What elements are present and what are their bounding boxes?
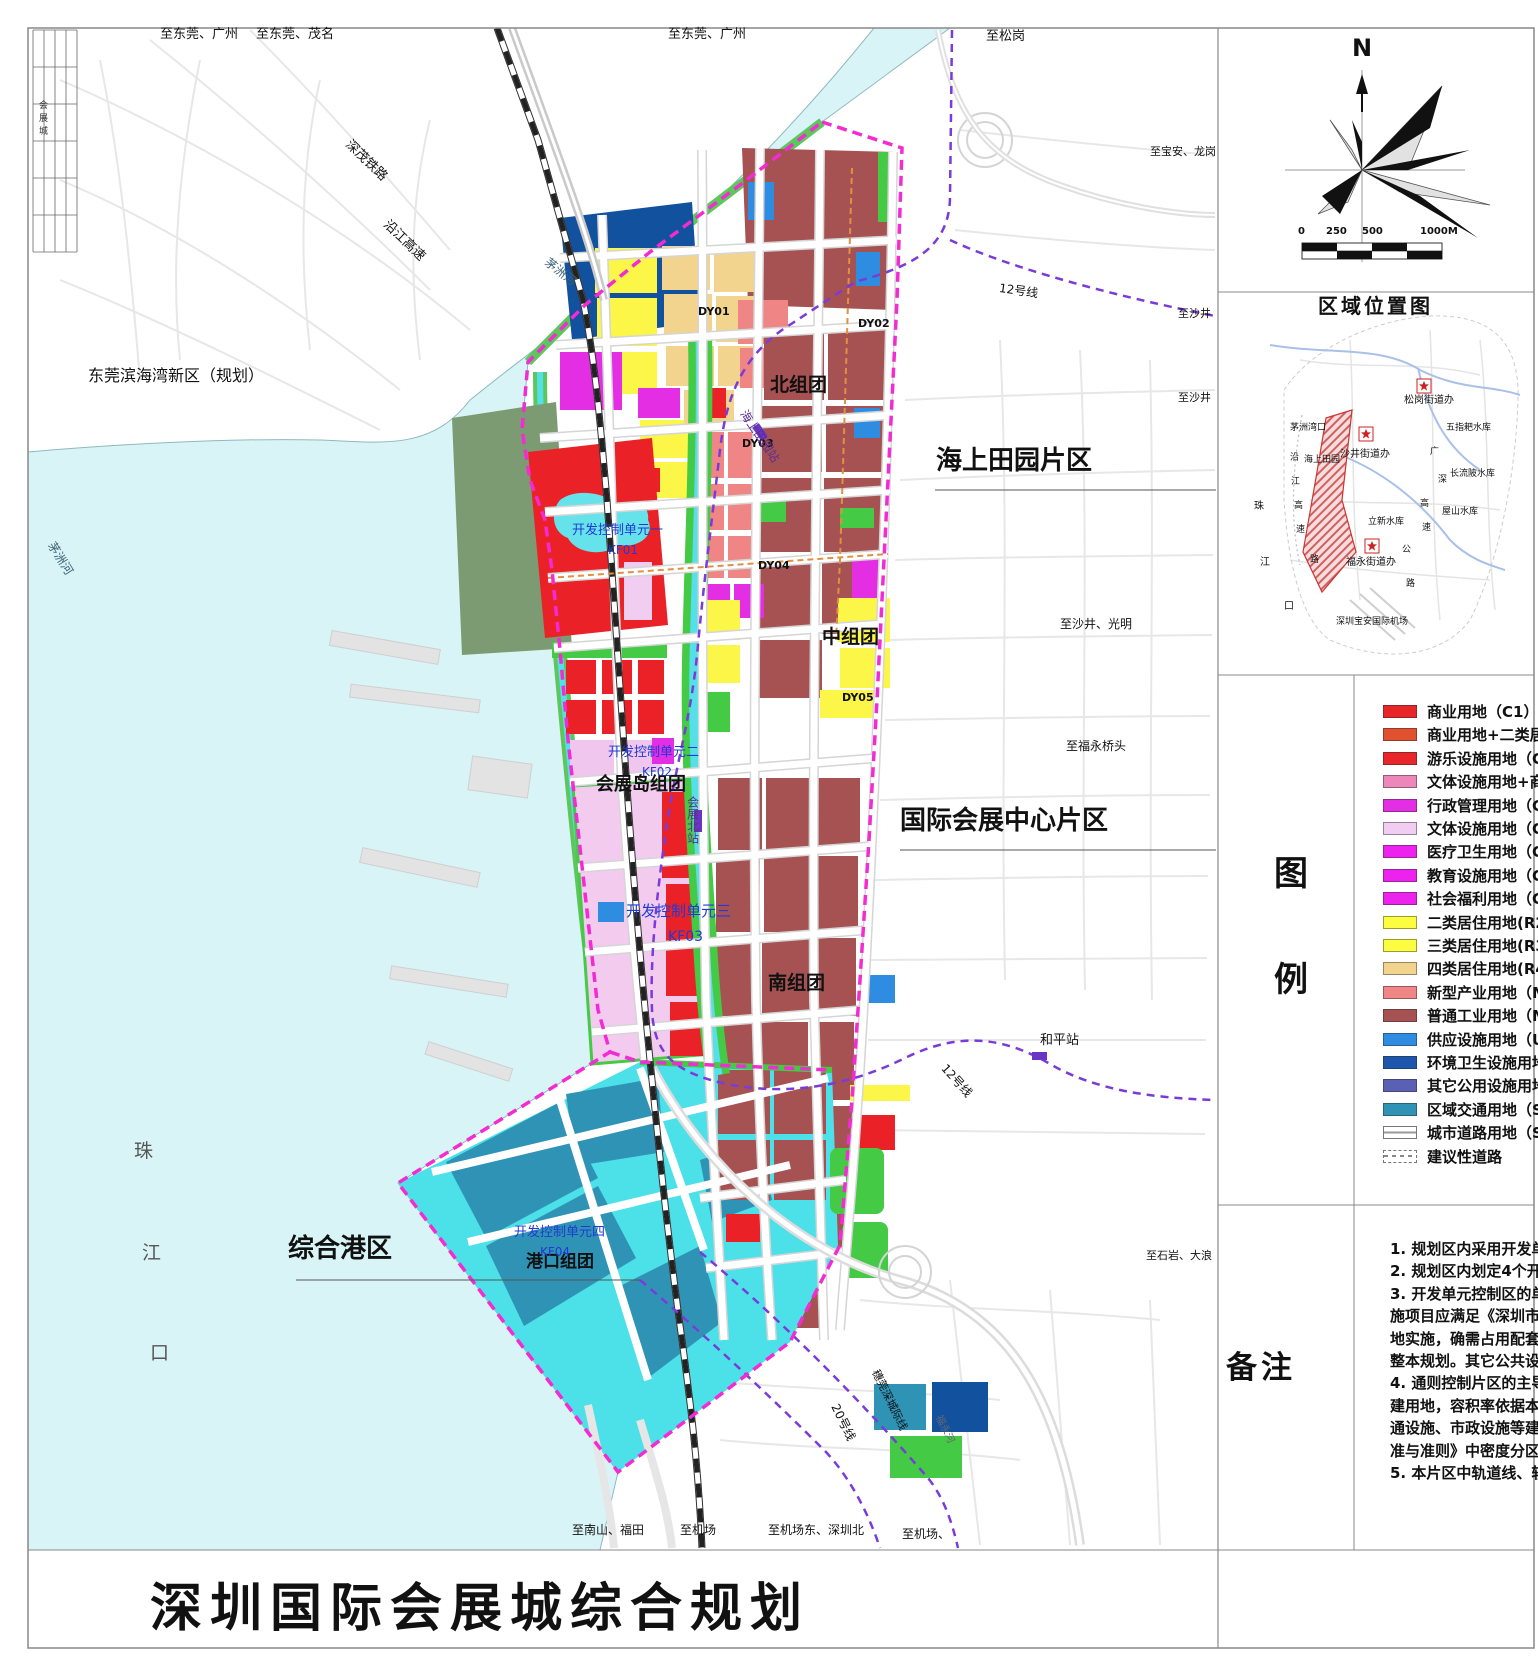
note-line: 4. 通则控制片区的主导 <box>1390 1372 1538 1393</box>
location-map-label: 沙井街道办 <box>1340 450 1390 461</box>
legend-swatch <box>1383 1033 1417 1046</box>
location-map-label: 江 <box>1260 558 1270 569</box>
legend-item: 二类居住用地(R2) <box>1383 911 1538 934</box>
map-canvas <box>0 0 1538 1670</box>
location-map-label: 广 <box>1430 448 1439 457</box>
location-map-label: 立新水库 <box>1368 518 1404 527</box>
legend-item-label: 行政管理用地（GIC1） <box>1427 795 1538 816</box>
legend-item-label: 区域交通用地（S1） <box>1427 1099 1538 1120</box>
legend-swatch <box>1383 892 1417 905</box>
note-line: 施项目应满足《深圳市 <box>1390 1305 1538 1326</box>
map-label: 至石岩、大浪 <box>1146 1250 1212 1262</box>
legend-item-label: 城市道路用地（S2） <box>1427 1122 1538 1143</box>
note-line: 地实施，确需占用配套 <box>1390 1328 1538 1349</box>
district-label: 综合港区 <box>288 1236 392 1263</box>
legend-swatch <box>1383 1126 1417 1139</box>
location-map-title: 区域位置图 <box>1318 290 1433 319</box>
location-map-label: 海上田园 <box>1304 456 1340 465</box>
note-line: 3. 开发单元控制区的单 <box>1390 1283 1538 1304</box>
location-map-label: 福永街道办 <box>1346 558 1396 569</box>
map-label: 江 <box>142 1244 161 1264</box>
scale-tick-500: 500 <box>1362 226 1383 237</box>
location-map-label: 茅洲湾口 <box>1290 424 1326 433</box>
location-map-label: 公 <box>1402 546 1411 555</box>
compass-rose <box>1285 70 1490 262</box>
legend-item: 环境卫生设施用地 <box>1383 1051 1538 1074</box>
station-label: 和平站 <box>1040 1034 1079 1048</box>
legend-item-label: 四类居住用地(R4) <box>1427 958 1538 979</box>
location-map-label: 五指耙水库 <box>1446 424 1491 433</box>
unit-label: DY01 <box>698 306 730 318</box>
map-label: 至机场、 <box>902 1528 950 1541</box>
legend-swatch <box>1383 728 1417 741</box>
legend-swatch <box>1383 775 1417 788</box>
legend-item-label: 建议性道路 <box>1427 1146 1502 1167</box>
map-label: 至沙井 <box>1178 308 1211 320</box>
legend-item-label: 游乐设施用地（C5） <box>1427 748 1538 769</box>
scale-tick-250: 250 <box>1326 226 1347 237</box>
legend-swatch <box>1383 962 1417 975</box>
legend-item-label: 普通工业用地（M1） <box>1427 1005 1538 1026</box>
station-label: 会展北站 <box>686 796 699 844</box>
scale-tick-0: 0 <box>1298 226 1305 237</box>
location-map-label: 珠 <box>1254 502 1264 513</box>
north-label: N <box>1352 34 1372 62</box>
legend-item: 社会福利用地（GIC6） <box>1383 887 1538 910</box>
location-map-label: 松岗街道办 <box>1404 396 1454 407</box>
note-line: 2. 规划区内划定4个开发单 <box>1390 1260 1538 1281</box>
cluster-label: 会展岛组团 <box>596 776 686 795</box>
map-label: 至东莞、茂名 <box>256 28 334 42</box>
legend-swatch <box>1383 845 1417 858</box>
map-label: 至东莞、广州 <box>668 28 746 42</box>
map-label: 东莞滨海湾新区（规划） <box>88 368 264 385</box>
map-label: 至南山、福田 <box>572 1524 644 1537</box>
notes-section-label: 备注 <box>1226 1342 1296 1387</box>
location-map-label: 江 <box>1291 478 1300 487</box>
location-map-label: 屋山水库 <box>1442 508 1478 517</box>
plan-sheet: { "sheet": { "title": "深圳国际会展城综合规划", "co… <box>0 0 1538 1670</box>
location-map-label: 沿 <box>1290 454 1299 463</box>
legend-item: 普通工业用地（M1） <box>1383 1004 1538 1027</box>
note-line: 整本规划。其它公共设 <box>1390 1350 1538 1371</box>
location-map-label: 高 <box>1420 500 1429 509</box>
control-unit-label: KF03 <box>668 930 703 945</box>
legend-item-label: 供应设施用地（U1） <box>1427 1029 1538 1050</box>
district-label: 海上田园片区 <box>936 448 1092 475</box>
legend-item-label: 文体设施用地+商业用地 <box>1427 771 1538 792</box>
control-unit-label: 开发控制单元一 <box>572 524 663 538</box>
legend-swatch <box>1383 705 1417 718</box>
map-label: 珠 <box>134 1142 153 1162</box>
legend-swatch <box>1383 1056 1417 1069</box>
legend-swatch <box>1383 1079 1417 1092</box>
sheet-title: 深圳国际会展城综合规划 <box>150 1566 810 1641</box>
map-label: 至松岗 <box>986 30 1025 44</box>
legend-item: 城市道路用地（S2） <box>1383 1121 1538 1144</box>
legend-item: 行政管理用地（GIC1） <box>1383 794 1538 817</box>
scale-tick-1000: 1000M <box>1420 226 1458 237</box>
legend-item: 文体设施用地（GIC2） <box>1383 817 1538 840</box>
cluster-label: 中组团 <box>822 628 879 648</box>
corner-strip-text: 会展城 <box>36 100 49 139</box>
legend-item: 商业用地（C1） <box>1383 700 1538 723</box>
legend-item-label: 文体设施用地（GIC2） <box>1427 818 1538 839</box>
legend-swatch <box>1383 1103 1417 1116</box>
map-label: 口 <box>150 1344 169 1364</box>
control-unit-label: KF01 <box>608 544 638 557</box>
location-minimap <box>1270 316 1520 654</box>
legend-swatch <box>1383 822 1417 835</box>
location-map-label: 深 <box>1438 476 1447 485</box>
legend-item-label: 二类居住用地(R2) <box>1427 912 1538 933</box>
map-label: 至机场 <box>680 1524 716 1537</box>
legend-item: 四类居住用地(R4) <box>1383 957 1538 980</box>
map-label: 至沙井 <box>1178 392 1211 404</box>
legend-swatch <box>1383 1150 1417 1163</box>
legend-item: 三类居住用地(R3) <box>1383 934 1538 957</box>
district-label: 国际会展中心片区 <box>900 808 1108 835</box>
location-map-label: 口 <box>1284 602 1294 613</box>
map-label: 至机场东、深圳北 <box>768 1524 864 1537</box>
unit-label: DY04 <box>758 560 790 572</box>
cluster-label: 南组团 <box>768 974 825 994</box>
note-line: 建用地，容积率依据本 <box>1390 1395 1538 1416</box>
note-line: 准与准则》中密度分区 <box>1390 1440 1538 1461</box>
location-map-label: 高 <box>1294 502 1303 511</box>
legend-item-label: 其它公用设施用地 <box>1427 1075 1538 1096</box>
legend-item: 新型产业用地（M0） <box>1383 981 1538 1004</box>
legend-item-label: 社会福利用地（GIC6） <box>1427 888 1538 909</box>
location-map-label: 路 <box>1310 556 1319 565</box>
map-label: 至宝安、龙岗 <box>1150 146 1216 158</box>
unit-label: DY05 <box>842 692 874 704</box>
legend-item-label: 教育设施用地（GIC5） <box>1427 865 1538 886</box>
legend-section-label-bottom: 例 <box>1274 952 1308 1001</box>
scale-bar <box>1302 243 1442 259</box>
legend-item: 其它公用设施用地 <box>1383 1074 1538 1097</box>
legend-item: 建议性道路 <box>1383 1145 1502 1168</box>
location-map-label: 长流陂水库 <box>1450 470 1495 479</box>
control-unit-label: 开发控制单元三 <box>626 904 731 920</box>
map-label: 至沙井、光明 <box>1060 618 1132 631</box>
location-map-label: 深圳宝安国际机场 <box>1336 618 1408 627</box>
unit-label: DY02 <box>858 318 890 330</box>
legend-swatch <box>1383 752 1417 765</box>
map-label: 至东莞、广州 <box>160 28 238 42</box>
legend-item-label: 三类居住用地(R3) <box>1427 935 1538 956</box>
location-map-label: 速 <box>1296 526 1305 535</box>
map-label: 至福永桥头 <box>1066 740 1126 753</box>
legend-item-label: 新型产业用地（M0） <box>1427 982 1538 1003</box>
legend-swatch <box>1383 799 1417 812</box>
control-unit-label: 开发控制单元四 <box>514 1226 605 1240</box>
legend-item: 供应设施用地（U1） <box>1383 1028 1538 1051</box>
legend-item-label: 商业用地（C1） <box>1427 701 1538 722</box>
control-unit-label: 开发控制单元二 <box>608 746 699 760</box>
legend-section-label-top: 图 <box>1274 846 1308 895</box>
legend-item: 教育设施用地（GIC5） <box>1383 864 1538 887</box>
note-line: 5. 本片区中轨道线、轨道 <box>1390 1462 1538 1483</box>
legend-item: 商业用地+二类居住用地 <box>1383 723 1538 746</box>
location-map-label: 路 <box>1406 580 1415 589</box>
legend-item-label: 环境卫生设施用地 <box>1427 1052 1538 1073</box>
cluster-label: 北组团 <box>770 376 827 396</box>
legend-item: 医疗卫生用地（GIC4） <box>1383 840 1538 863</box>
legend-swatch <box>1383 916 1417 929</box>
legend-item: 区域交通用地（S1） <box>1383 1098 1538 1121</box>
legend-swatch <box>1383 1009 1417 1022</box>
legend-swatch <box>1383 869 1417 882</box>
legend-swatch <box>1383 986 1417 999</box>
legend-swatch <box>1383 939 1417 952</box>
legend-item: 文体设施用地+商业用地 <box>1383 770 1538 793</box>
location-map-label: 速 <box>1422 524 1431 533</box>
control-unit-label: KF02 <box>642 766 672 779</box>
control-unit-label: KF04 <box>540 1246 570 1259</box>
note-line: 1. 规划区内采用开发单元 <box>1390 1238 1538 1259</box>
legend-item: 游乐设施用地（C5） <box>1383 747 1538 770</box>
legend-item-label: 医疗卫生用地（GIC4） <box>1427 841 1538 862</box>
note-line: 通设施、市政设施等建 <box>1390 1417 1538 1438</box>
legend-item-label: 商业用地+二类居住用地 <box>1427 724 1538 745</box>
